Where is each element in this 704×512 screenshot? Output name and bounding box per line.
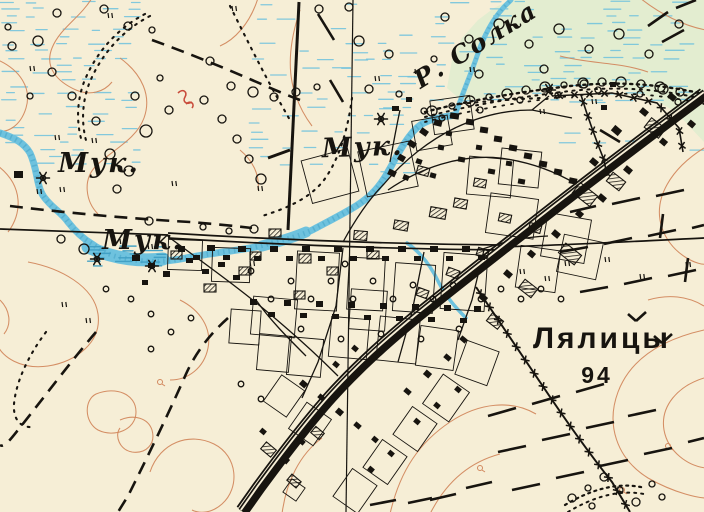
- building-solid: [202, 269, 209, 274]
- meadow-mark: [34, 66, 35, 71]
- building-solid: [218, 262, 225, 267]
- meadow-mark: [60, 187, 61, 192]
- meadow-mark: [379, 76, 380, 81]
- building-solid: [286, 256, 293, 261]
- label-village-lyalitsy: Лялицы: [533, 322, 671, 355]
- label-spot-elevation: 94: [581, 362, 613, 388]
- building-solid: [193, 255, 200, 260]
- meadow-mark: [176, 181, 177, 186]
- meadow-mark: [236, 6, 237, 11]
- meadow-mark: [62, 302, 63, 307]
- meadow-mark: [64, 187, 65, 192]
- building-solid: [428, 317, 435, 322]
- building-solid: [382, 256, 389, 261]
- building-solid: [494, 135, 503, 142]
- building-hatched: [393, 220, 408, 231]
- building-solid: [438, 145, 445, 151]
- building-solid: [238, 246, 246, 252]
- building-hatched: [250, 252, 261, 260]
- building-solid: [186, 258, 193, 263]
- building-hatched: [294, 291, 305, 299]
- building-solid: [430, 246, 438, 252]
- building-hatched: [367, 251, 379, 259]
- building-solid: [348, 302, 355, 308]
- building-solid: [270, 246, 278, 252]
- meadow-mark: [375, 76, 376, 81]
- building-solid: [380, 303, 387, 309]
- meadow-mark: [520, 269, 521, 274]
- meadow-mark: [59, 135, 60, 140]
- building-solid: [142, 280, 148, 285]
- meadow-mark: [254, 261, 255, 266]
- meadow-mark: [96, 138, 97, 143]
- building-solid: [601, 105, 607, 110]
- building-solid: [610, 82, 616, 87]
- building-hatched: [299, 254, 311, 263]
- meadow-mark: [55, 135, 56, 140]
- meadow-mark: [41, 189, 42, 194]
- building-solid: [460, 318, 467, 323]
- building-solid: [466, 118, 475, 125]
- building-hatched: [269, 229, 281, 237]
- building-solid: [302, 246, 310, 252]
- meadow-mark: [592, 99, 593, 104]
- building-hatched: [204, 284, 216, 292]
- meadow-mark: [250, 261, 251, 266]
- boundary-cross-tick: [604, 477, 613, 478]
- label-mill-1: Мук.: [57, 148, 140, 179]
- meadow-mark: [565, 261, 566, 266]
- meadow-mark: [605, 257, 606, 262]
- meadow-mark: [232, 6, 233, 11]
- meadow-mark: [112, 13, 113, 18]
- building-hatched: [473, 178, 486, 188]
- building-solid: [450, 112, 460, 119]
- meadow-mark: [86, 318, 87, 323]
- building-solid: [462, 246, 470, 252]
- meadow-mark: [90, 318, 91, 323]
- boundary-cross-tick: [667, 119, 676, 120]
- building-hatched: [498, 213, 511, 223]
- meadow-mark: [258, 186, 259, 191]
- meadow-mark: [30, 66, 31, 71]
- meadow-mark: [549, 276, 550, 281]
- building-solid: [207, 245, 215, 251]
- building-solid: [268, 312, 275, 317]
- boundary-cross-tick: [657, 107, 666, 108]
- building-solid: [446, 256, 453, 261]
- meadow-mark: [474, 67, 475, 72]
- label-mill-3: Мук.: [320, 131, 404, 165]
- meadow-mark: [690, 262, 691, 267]
- map-scan: Р. Солка Мук. Мук. Мук. Лялицы 94: [0, 0, 704, 512]
- building-solid: [476, 145, 483, 151]
- meadow-mark: [545, 276, 546, 281]
- building-solid: [350, 256, 357, 261]
- building-solid: [318, 256, 325, 261]
- building-solid: [396, 316, 403, 321]
- building-solid: [480, 126, 489, 133]
- building-solid: [412, 304, 419, 310]
- building-solid: [14, 171, 23, 178]
- meadow-mark: [470, 67, 471, 72]
- building-hatched: [453, 198, 467, 209]
- building-solid: [284, 300, 291, 306]
- building-solid: [406, 97, 412, 102]
- meadow-mark: [686, 262, 687, 267]
- building-solid: [444, 305, 451, 311]
- meadow-mark: [596, 99, 597, 104]
- building-solid: [334, 246, 342, 252]
- building-solid: [163, 271, 170, 277]
- topographic-map: Р. Солка Мук. Мук. Мук. Лялицы 94: [0, 0, 704, 512]
- label-mill-2: Мук.: [101, 225, 184, 256]
- meadow-mark: [524, 269, 525, 274]
- meadow-mark: [172, 181, 173, 186]
- building-solid: [332, 314, 339, 319]
- meadow-mark: [544, 109, 545, 114]
- building-solid: [506, 161, 513, 167]
- building-hatched: [327, 267, 338, 275]
- building-solid: [223, 255, 230, 260]
- meadow-mark: [108, 13, 109, 18]
- meadow-mark: [609, 257, 610, 262]
- meadow-mark: [66, 302, 67, 307]
- meadow-mark: [262, 186, 263, 191]
- building-solid: [316, 301, 323, 307]
- meadow-mark: [37, 189, 38, 194]
- building-solid: [446, 131, 453, 137]
- building-solid: [474, 306, 481, 312]
- meadow-mark: [92, 138, 93, 143]
- building-solid: [392, 106, 399, 111]
- building-solid: [233, 275, 240, 280]
- building-solid: [398, 246, 406, 252]
- meadow-mark: [569, 261, 570, 266]
- meadow-mark: [640, 274, 641, 279]
- building-hatched: [429, 207, 446, 220]
- building-solid: [250, 299, 257, 305]
- building-solid: [414, 256, 421, 261]
- building-hatched: [354, 230, 368, 240]
- meadow-mark: [644, 274, 645, 279]
- meadow-mark: [540, 109, 541, 114]
- building-solid: [364, 315, 371, 320]
- building-solid: [300, 313, 307, 318]
